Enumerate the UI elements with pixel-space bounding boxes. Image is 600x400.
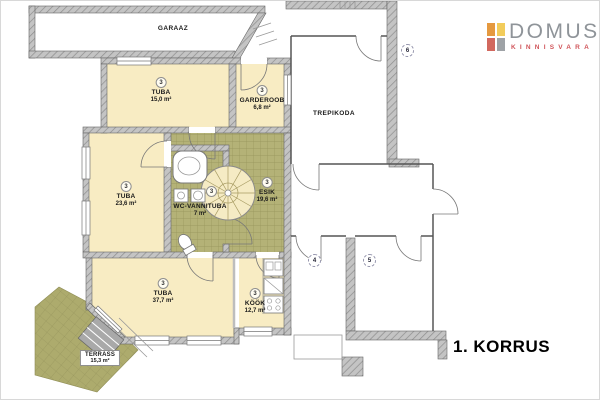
logo-text: DOMUS KINNISVARA	[509, 21, 600, 51]
logo-grid-icon	[487, 23, 505, 51]
apartment-number-badge: 3	[206, 186, 217, 197]
logo-square-yellow	[497, 23, 505, 36]
floor-title: 1. KORRUS	[453, 337, 550, 357]
room-area: 15,3 m²	[85, 358, 115, 364]
room-label-garaaz: GARAAZ	[158, 25, 188, 32]
logo-title: DOMUS	[509, 21, 600, 42]
unit-marker-lower-left: 4	[308, 254, 321, 267]
logo-square-orange	[487, 23, 495, 36]
logo-square-red	[487, 38, 495, 51]
unit-marker-lower-right: 5	[363, 254, 376, 267]
logo-square-gray	[497, 38, 505, 51]
room-label-terrass: TERRASS 15,3 m²	[80, 350, 120, 366]
unit-marker-stairwell: 6	[401, 44, 414, 57]
logo: DOMUS KINNISVARA	[487, 21, 600, 51]
floor-plan-page: GARAAZ TREPIKODA 3 TUBA 15,0 m² 3 GARDER…	[0, 0, 600, 400]
logo-subtitle: KINNISVARA	[511, 44, 600, 51]
kitchen-fixtures	[263, 258, 283, 314]
room-label-trepikoda: TREPIKODA	[313, 110, 355, 117]
